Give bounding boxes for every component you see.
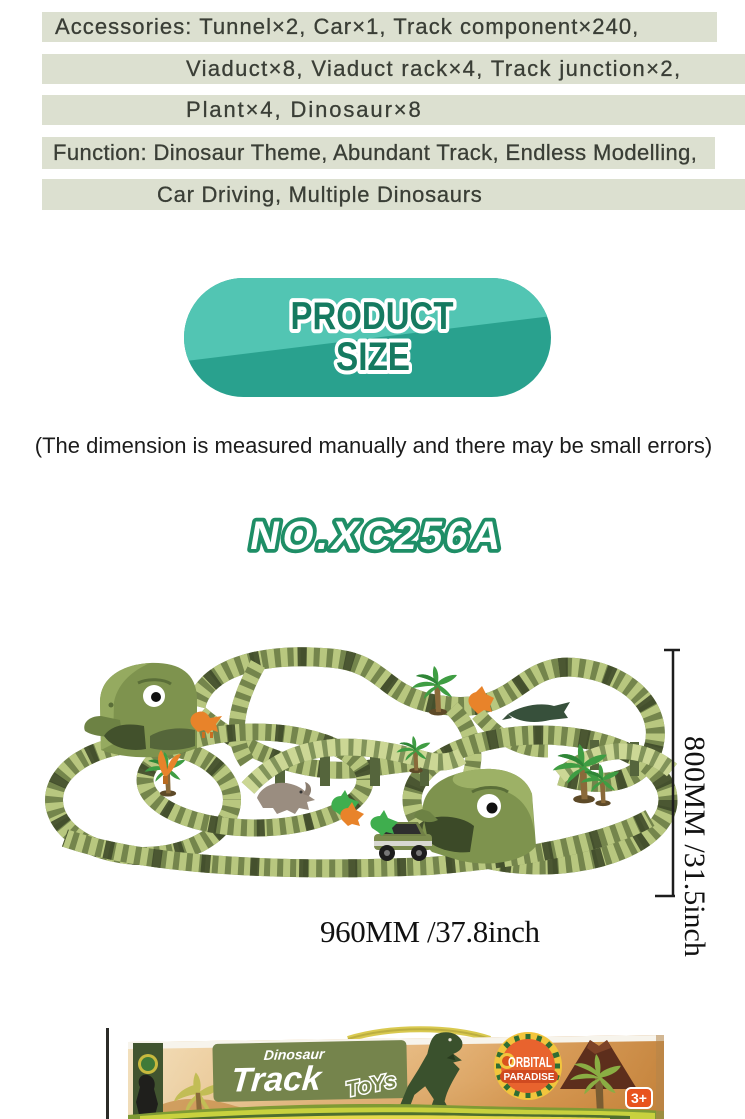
svg-text:3+: 3+ [631,1090,647,1106]
svg-text:PRODUCT: PRODUCT [291,295,454,338]
svg-text:Track: Track [229,1060,324,1100]
svg-text:SIZE: SIZE [336,335,410,379]
svg-text:NO.XC256A: NO.XC256A [247,513,505,558]
svg-text:800MM /31.5inch: 800MM /31.5inch [678,736,711,957]
svg-text:PARADISE: PARADISE [504,1072,555,1083]
svg-text:ORBITAL: ORBITAL [508,1054,552,1071]
